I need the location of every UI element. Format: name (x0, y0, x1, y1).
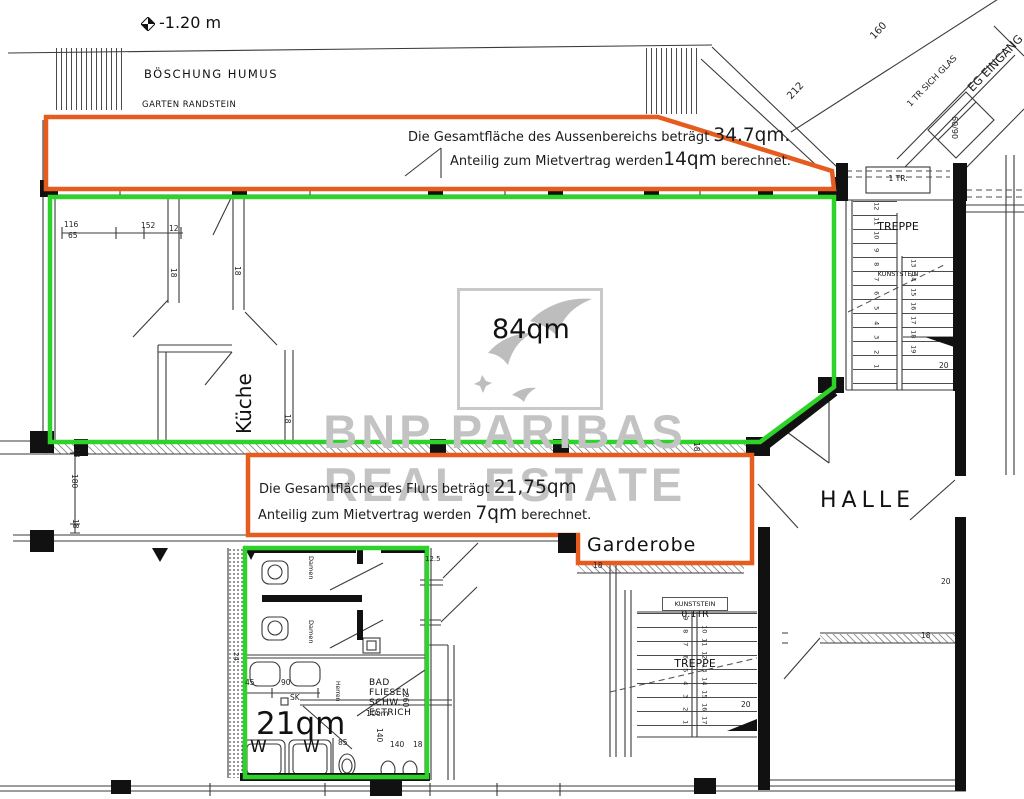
dimension-label: 90 (281, 679, 291, 687)
dimension-label: 140 (376, 728, 384, 742)
dimension-label: 1 TR SICH GLAS (906, 54, 959, 109)
dimension-label: 18 (593, 562, 603, 570)
dimension-label: 18 (413, 741, 423, 749)
dimension-label: EG EINGANG (966, 33, 1024, 94)
dimension-label: 152 (141, 222, 155, 230)
dimension-label: 18 (693, 442, 701, 452)
dimension-label: 212 (786, 81, 806, 102)
dimension-label: 65 (68, 232, 78, 240)
dimension-label: 20 (941, 578, 951, 586)
dimension-label: 116 (64, 221, 78, 229)
dimension-label: 12.5 (425, 556, 441, 563)
dimension-label: 18 (73, 448, 81, 458)
dimension-label: 160 (869, 21, 889, 42)
dimension-label: 45 (245, 679, 255, 687)
dimension-label: 60/90 (950, 116, 958, 139)
dimension-label: 12 (169, 225, 179, 233)
dimension-label: SK (290, 694, 300, 702)
dimension-label: 140 (390, 741, 404, 749)
dimension-label: 85 (338, 739, 348, 747)
floor-plan-page: BNP PARIBAS REAL ESTATE -1.20 m BÖSCHUNG… (0, 0, 1024, 799)
dimension-label: 18 (921, 632, 931, 640)
dimension-label: 260 (402, 693, 410, 707)
dimension-labels: 11665152121818181818018182121601 TR SICH… (0, 0, 1024, 799)
dimension-label: 180 (71, 474, 79, 488)
dimension-label: 18 (284, 414, 292, 424)
dimension-label: 18 (170, 268, 178, 278)
dimension-label: 20 (939, 362, 949, 370)
dimension-label: 24 (232, 652, 239, 661)
dimension-label: 18 (72, 519, 80, 529)
dimension-label: 20 (741, 701, 751, 709)
dimension-label: 10cm (366, 710, 388, 718)
dimension-label: 18 (234, 266, 242, 276)
